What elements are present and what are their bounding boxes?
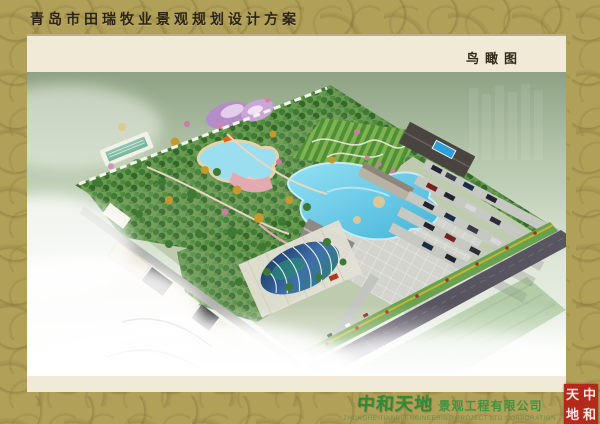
- content-panel: 鸟瞰图: [27, 34, 566, 392]
- company-name-english: ZHONGHE TIANDI ENGINEERING PROJECT LTD C…: [343, 416, 556, 422]
- aerial-rendering-svg: [27, 72, 566, 376]
- seal-char: 天: [566, 388, 579, 401]
- aerial-rendering: [27, 72, 566, 376]
- seal-char: 中: [583, 388, 596, 401]
- seal-char: 和: [583, 408, 596, 421]
- seal-char: 地: [566, 408, 579, 421]
- footer-band: 中和天地 景观工程有限公司 ZHONGHE TIANDI ENGINEERING…: [0, 392, 600, 424]
- company-logo: 中和天地 景观工程有限公司 ZHONGHE TIANDI ENGINEERING…: [343, 395, 556, 422]
- page-title: 青岛市田瑞牧业景观规划设计方案: [30, 9, 300, 29]
- company-seal: 天 中 地 和: [564, 384, 598, 424]
- logo-wordmark: 中和天地: [356, 395, 434, 413]
- presentation-board: 青岛市田瑞牧业景观规划设计方案 鸟瞰图: [0, 0, 600, 424]
- company-name: 景观工程有限公司: [439, 400, 543, 412]
- bottom-fade: [27, 304, 566, 376]
- view-label: 鸟瞰图: [466, 48, 523, 67]
